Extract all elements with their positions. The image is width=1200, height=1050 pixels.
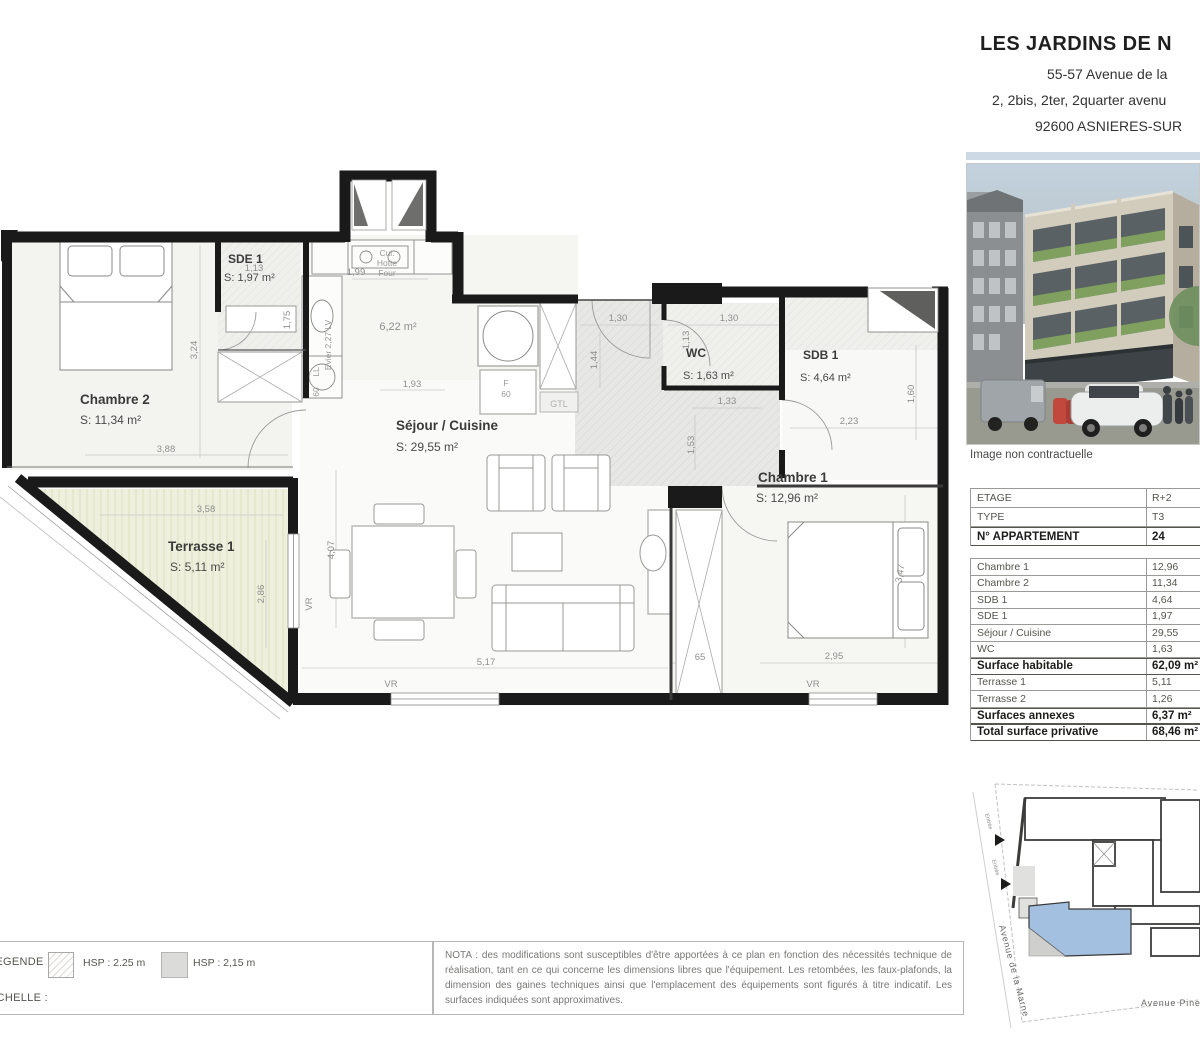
chambre2-area: S: 11,34 m² (80, 413, 141, 427)
kitchen-ll60-label: 60 (311, 387, 321, 397)
table-row: Chambre 211,34 (971, 576, 1200, 593)
project-title: LES JARDINS DE N (980, 33, 1172, 56)
table-row: SDB 14,64 (971, 592, 1200, 609)
vr-label-chambre1: VR (806, 679, 819, 690)
window-sejour-bottom (391, 693, 499, 705)
dim-1-99: 1,99 (347, 267, 366, 278)
sejour-label: Séjour / Cuisine (396, 418, 499, 433)
entry-label-1: Entrée (983, 813, 993, 830)
kitchen-cupboard (540, 303, 576, 389)
building-photo (966, 163, 1200, 445)
terrasse1-label: Terrasse 1 (168, 539, 235, 554)
legend-swatch-hatched (48, 952, 74, 978)
wardrobe-chambre2 (218, 352, 302, 402)
row-value: T3 (1147, 511, 1164, 523)
table-row: WC1,63 (971, 642, 1200, 659)
address-line-2: 2, 2bis, 2ter, 2quarter avenu (992, 92, 1166, 108)
row-label: TYPE (971, 508, 1147, 526)
dim-1-13-wc: 1,13 (681, 331, 692, 350)
address-line-3: 92600 ASNIERES-SUR (1035, 118, 1182, 134)
table-row: Terrasse 15,11 (971, 675, 1200, 692)
sofa (492, 585, 634, 651)
kitchen-evier-label: Evier 2,27 LV (323, 319, 333, 370)
table-row-total-surface: Total surface privative68,46 m² (971, 724, 1200, 741)
window-protrusion-left (352, 180, 386, 230)
dim-4-07: 4,07 (326, 541, 337, 560)
row-value: 1,63 (1147, 643, 1172, 655)
dim-2-95: 2,95 (825, 651, 844, 662)
building-photo-illustration (967, 164, 1200, 445)
row-value: 6,37 m² (1147, 710, 1192, 722)
armchair-1 (487, 455, 545, 511)
gtl-label: GTL (550, 399, 568, 409)
row-label: ETAGE (971, 489, 1147, 507)
armchair-2 (552, 455, 610, 511)
kitchen-boiler (478, 306, 538, 366)
fridge-f-label: F (503, 378, 508, 388)
dim-1-30-a: 1,30 (609, 313, 628, 324)
window-chambre1-bottom (809, 693, 877, 705)
nota-box: NOTA : des modifications sont susceptibl… (433, 941, 964, 1015)
window-sdb-corner (868, 288, 938, 332)
kitchen-area-label: 6,22 m² (379, 321, 417, 333)
row-value: R+2 (1147, 492, 1172, 504)
wall-block-entry (652, 283, 722, 304)
wardrobe-chambre1 (676, 510, 722, 698)
row-value: 29,55 (1147, 627, 1178, 639)
dim-1-33: 1,33 (718, 396, 737, 407)
row-label: Chambre 2 (971, 576, 1147, 592)
header-divider (966, 152, 1200, 160)
row-label: Total surface privative (971, 725, 1147, 740)
dim-2-23: 2,23 (840, 416, 859, 427)
row-value: 4,64 (1147, 594, 1172, 606)
row-value: 24 (1147, 531, 1165, 543)
row-label: Surface habitable (971, 659, 1147, 674)
photo-caption: Image non contractuelle (970, 449, 1093, 461)
dim-1-75: 1,75 (282, 311, 293, 330)
row-value: 1,97 (1147, 610, 1172, 622)
dim-1-60: 1,60 (906, 385, 917, 404)
row-value: 5,11 (1147, 676, 1172, 688)
legend-hsp-215: HSP : 2,15 m (193, 957, 255, 969)
window-terrasse (288, 534, 299, 628)
table-row-surfaces-annexes: Surfaces annexes6,37 m² (971, 708, 1200, 725)
legend-swatch-gray (161, 952, 188, 978)
apartment-areas-table: Chambre 112,96 Chambre 211,34 SDB 14,64 … (970, 558, 1200, 741)
coffee-table (512, 533, 562, 571)
row-value: 12,96 (1147, 561, 1178, 573)
row-value: 1,26 (1147, 693, 1172, 705)
sdb1-area: S: 4,64 m² (800, 372, 851, 384)
dim-3-24: 3,24 (189, 341, 200, 360)
main-building (1025, 192, 1200, 394)
table-row-apartment-number: N° APPARTEMENT24 (971, 527, 1200, 546)
fridge-60-label: 60 (501, 389, 511, 399)
kitchen-hotte-label: Hotte (377, 258, 398, 268)
table-row-surface-habitable: Surface habitable62,09 m² (971, 658, 1200, 675)
bed-chambre2 (60, 240, 172, 370)
wall-block-chambre1 (668, 486, 722, 508)
dim-2-86: 2,86 (256, 585, 267, 604)
row-value: 62,09 m² (1147, 660, 1198, 672)
legend-title: LEGENDE : (0, 956, 50, 968)
row-label: Chambre 1 (971, 559, 1147, 575)
vr-label-terrasse: VR (304, 597, 315, 610)
street-label-pine: Avenue Pine (1141, 998, 1200, 1008)
legend-box: LEGENDE : HSP : 2.25 m HSP : 2,15 m ECHE… (0, 941, 433, 1015)
table-row: Séjour / Cuisine29,55 (971, 625, 1200, 642)
row-label: SDE 1 (971, 609, 1147, 625)
floorplan-sheet: { "header": { "title": "LES JARDINS DE N… (0, 0, 1200, 1050)
address-line-1: 55-57 Avenue de la (1047, 66, 1167, 82)
dim-1-93: 1,93 (403, 379, 422, 390)
row-value: 68,46 m² (1147, 726, 1198, 738)
chambre1-area: S: 12,96 m² (756, 491, 818, 505)
row-value: 11,34 (1147, 577, 1178, 589)
dim-3-58: 3,58 (197, 504, 216, 515)
site-plan: Entrée Entrée Avenue de la Marne Avenue … (965, 778, 1200, 1050)
dim-3-88: 3,88 (157, 444, 176, 455)
window-protrusion-right (392, 180, 426, 230)
row-label: Terrasse 1 (971, 675, 1147, 691)
legend-hsp-225: HSP : 2.25 m (83, 957, 145, 969)
entry-block-1 (1013, 866, 1035, 896)
dim-1-30-b: 1,30 (720, 313, 739, 324)
chambre2-label: Chambre 2 (80, 392, 150, 407)
dim-65: 65 (695, 652, 706, 663)
sejour-area: S: 29,55 m² (396, 440, 458, 454)
table-row: ETAGER+2 (971, 489, 1200, 508)
sdb1-label: SDB 1 (803, 348, 839, 362)
kitchen-cui-label: Cui. (379, 248, 394, 258)
kitchen-ll-label: LL (311, 367, 321, 377)
bed-chambre1 (788, 522, 928, 638)
kitchen-four-label: Four (378, 268, 396, 278)
apartment-id-table: ETAGER+2 TYPET3 N° APPARTEMENT24 (970, 488, 1200, 546)
table-row: TYPET3 (971, 508, 1200, 527)
chambre1-label: Chambre 1 (758, 470, 828, 485)
table-row: Chambre 112,96 (971, 559, 1200, 576)
entry-label-2: Entrée (990, 859, 1000, 876)
dim-1-44: 1,44 (589, 351, 600, 370)
dim-5-17: 5,17 (477, 657, 496, 668)
vr-label-sejour: VR (384, 679, 397, 690)
table-row: Terrasse 21,26 (971, 691, 1200, 708)
scale-label: ECHELLE : (0, 992, 48, 1004)
row-label: Surfaces annexes (971, 709, 1147, 724)
wc-area: S: 1,63 m² (683, 370, 734, 382)
row-label: SDB 1 (971, 592, 1147, 608)
table-row: SDE 11,97 (971, 609, 1200, 626)
dim-1-53: 1,53 (686, 436, 697, 455)
floor-plan: Chambre 2 S: 11,34 m² SDE 1 S: 1,97 m² S… (0, 0, 965, 935)
dim-1-13-sde: 1,13 (245, 263, 264, 274)
row-label: Séjour / Cuisine (971, 625, 1147, 641)
pedestrians (1163, 386, 1193, 424)
row-label: N° APPARTEMENT (971, 528, 1147, 545)
terrasse1-area: S: 5,11 m² (170, 560, 224, 574)
row-label: Terrasse 2 (971, 691, 1147, 707)
entry-arrow-1 (995, 834, 1005, 846)
row-label: WC (971, 642, 1147, 658)
